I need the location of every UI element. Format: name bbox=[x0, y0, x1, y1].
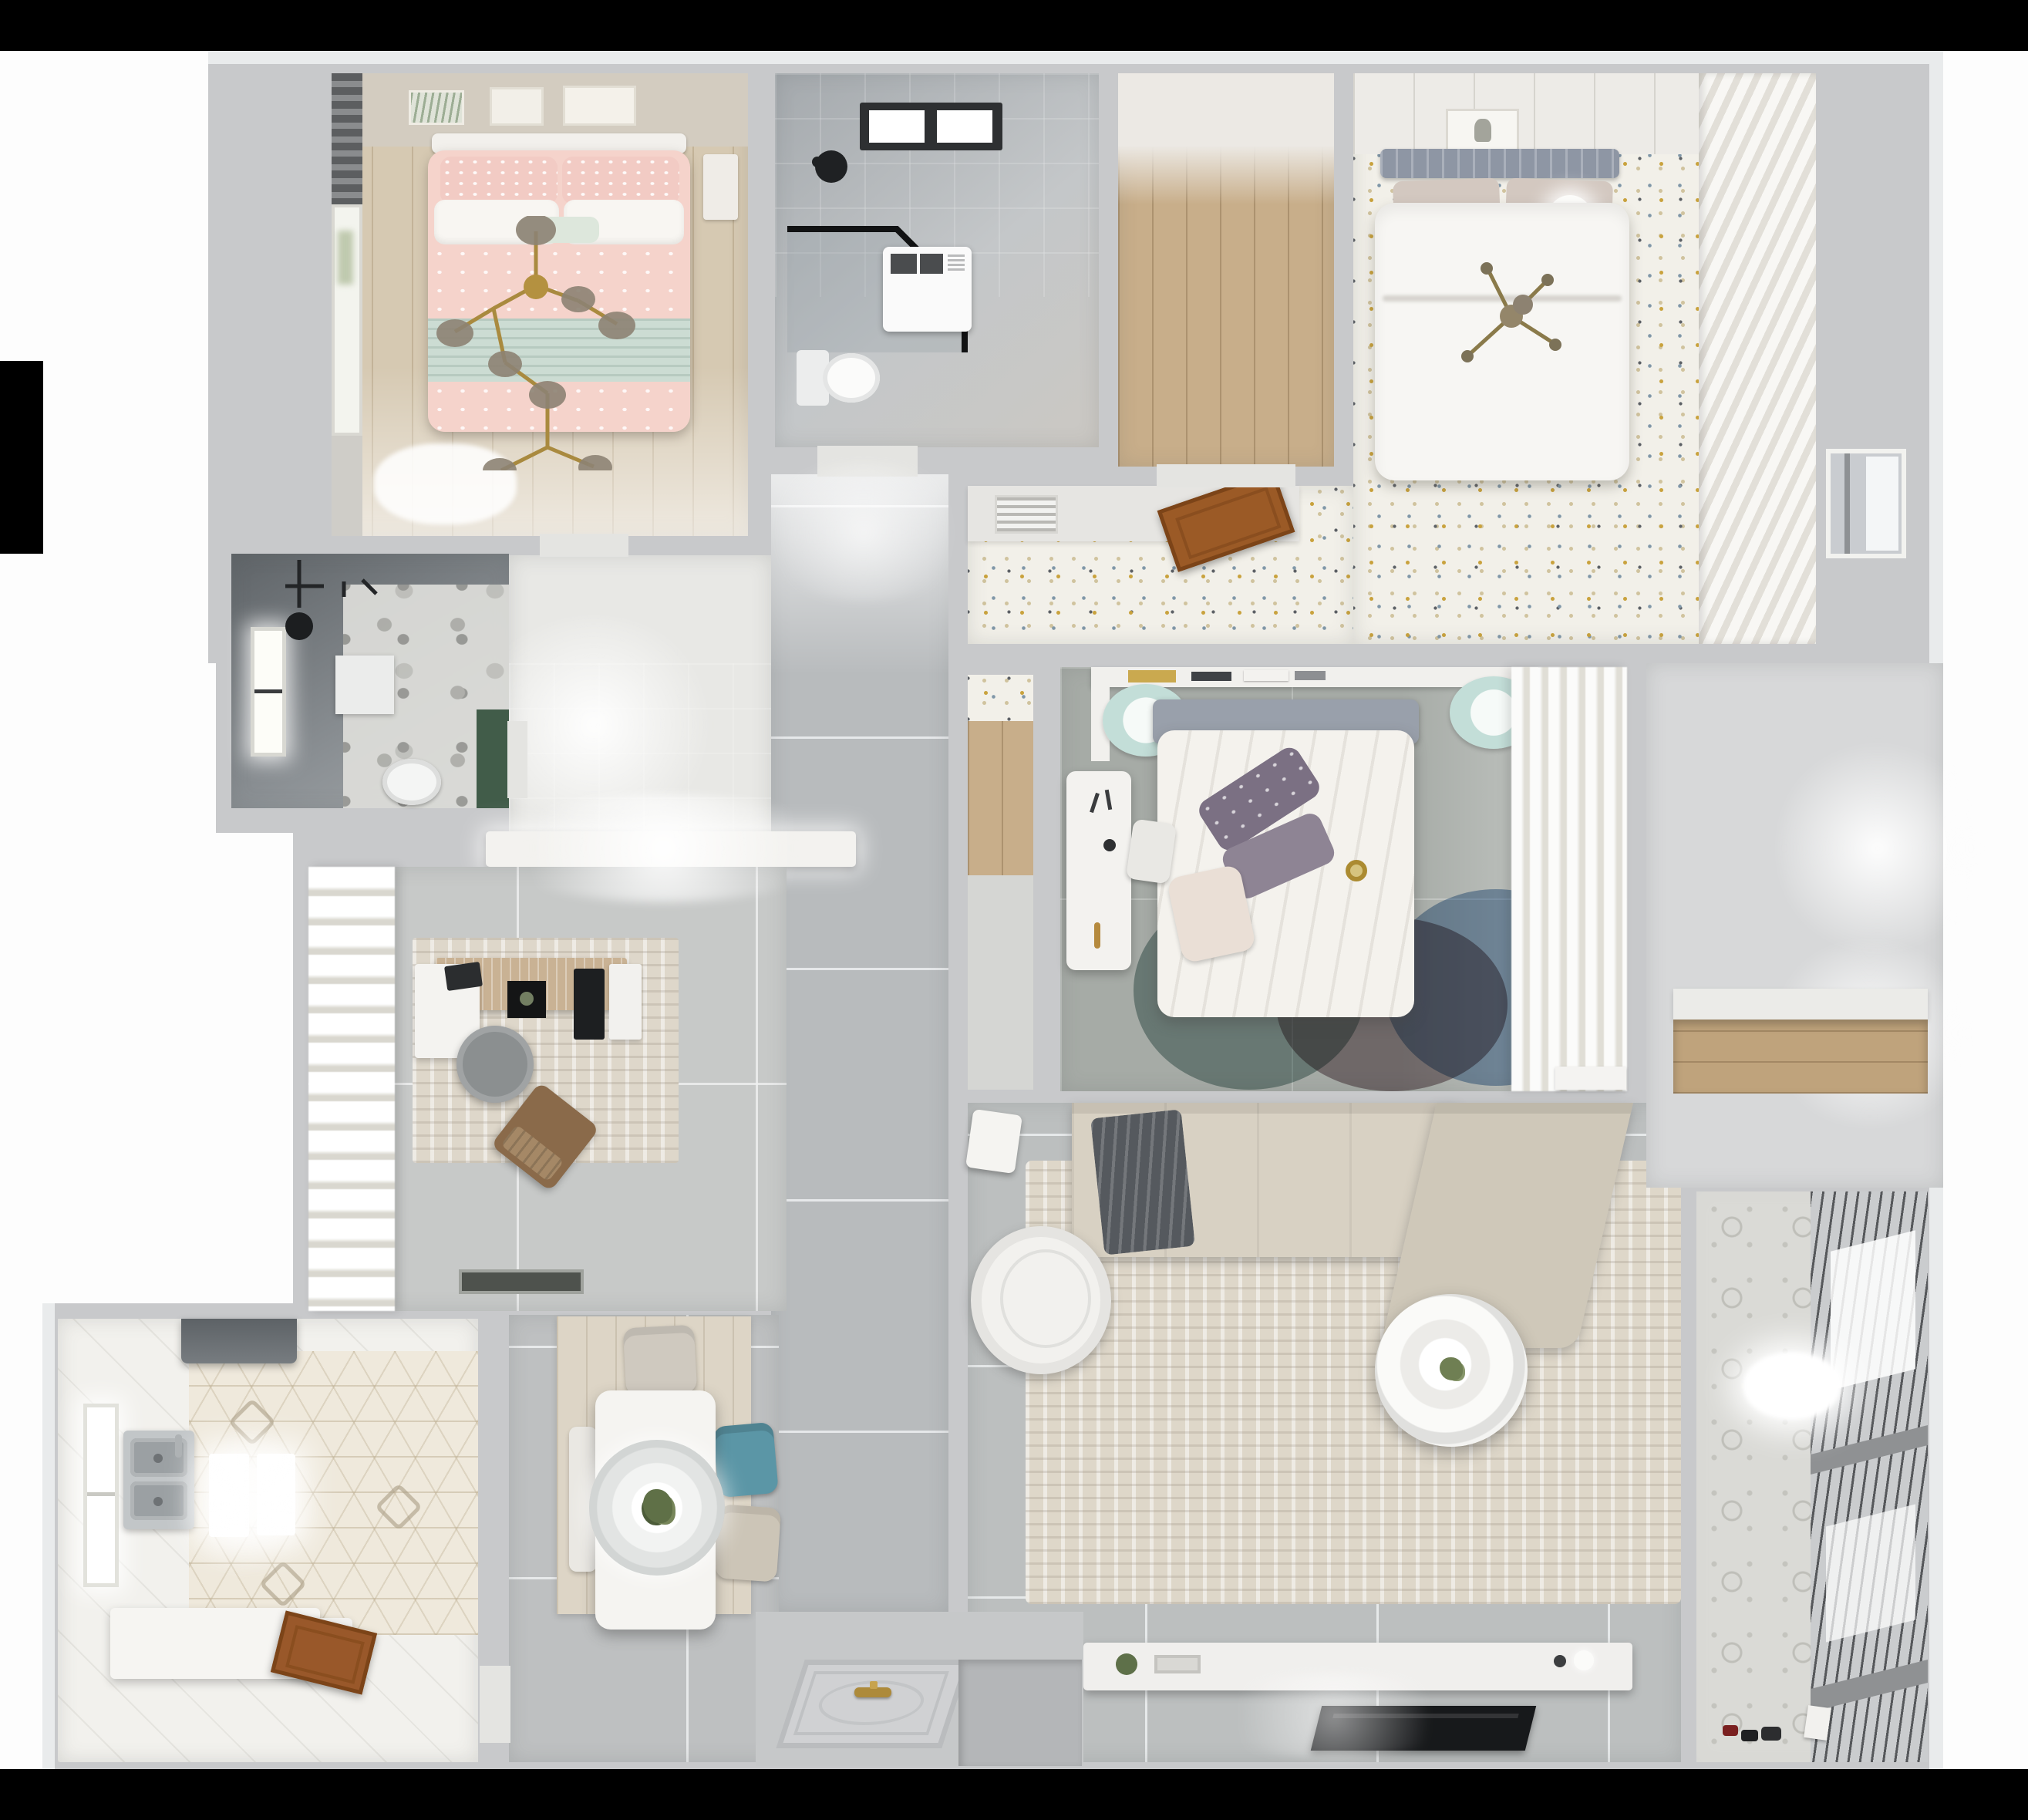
toy-dark-1 bbox=[1741, 1730, 1758, 1741]
wall-art-3 bbox=[563, 86, 636, 126]
blinds-rail-2 bbox=[1811, 1660, 1928, 1712]
door-gap-kitchen bbox=[480, 1666, 510, 1743]
washer-panel-2 bbox=[920, 254, 943, 274]
toy-red bbox=[1723, 1725, 1738, 1736]
drain-2 bbox=[153, 1497, 163, 1506]
midbed-desk bbox=[1066, 771, 1131, 970]
desk-handle-gold bbox=[1094, 922, 1100, 949]
wall-art-2 bbox=[490, 87, 544, 126]
shower-tray bbox=[335, 656, 394, 714]
book-1 bbox=[1128, 670, 1176, 682]
utility-wood-niche bbox=[1673, 1020, 1928, 1094]
kitchen-door-panel bbox=[285, 1625, 365, 1684]
armchair-seam bbox=[1000, 1249, 1091, 1348]
desk-plant-dot bbox=[520, 992, 534, 1006]
room-bedroom-middle bbox=[1060, 667, 1627, 1091]
lounge-cushion bbox=[500, 1124, 564, 1182]
sputnik-lamp-icon bbox=[1446, 251, 1577, 382]
desk-pen-2 bbox=[1105, 790, 1112, 810]
midbed-niche-speckle bbox=[968, 675, 1033, 721]
console-plant bbox=[1116, 1653, 1137, 1675]
nightstand bbox=[703, 154, 738, 220]
hex-motif-2 bbox=[375, 1483, 423, 1531]
right-wall-window bbox=[1826, 449, 1906, 558]
ac-vent-grille-icon bbox=[995, 495, 1058, 534]
pillow-pink-1 bbox=[440, 157, 558, 204]
green-vanity bbox=[477, 709, 509, 808]
utility-shelf-white bbox=[1673, 989, 1928, 1020]
book-4 bbox=[1295, 671, 1326, 680]
floorplan-render bbox=[0, 0, 2028, 1820]
sink-unit bbox=[123, 1431, 194, 1529]
desk-dot bbox=[1103, 839, 1116, 851]
wall-art-plant bbox=[1446, 109, 1519, 151]
room-hallway bbox=[771, 474, 948, 1612]
artifact-band-bottom bbox=[0, 1769, 2028, 1820]
room-closet bbox=[1118, 73, 1334, 467]
desk-pen-1 bbox=[1090, 793, 1100, 813]
drain-1 bbox=[153, 1454, 163, 1463]
toilet-small bbox=[382, 759, 441, 805]
kitchen-faucet-icon bbox=[175, 1434, 182, 1458]
tv-reflection bbox=[1332, 1714, 1518, 1718]
dining-chair-top bbox=[623, 1325, 697, 1397]
kitchen-window bbox=[83, 1404, 119, 1587]
coffee-table-donut bbox=[1375, 1294, 1528, 1447]
console-ball bbox=[1574, 1650, 1594, 1670]
room-bathroom-small bbox=[231, 554, 509, 808]
skylight-pane-2 bbox=[937, 110, 992, 143]
art-plant-sketch bbox=[1474, 119, 1491, 142]
tv-panel bbox=[1311, 1706, 1536, 1751]
room-bedroom-pink bbox=[332, 73, 748, 536]
tv-console bbox=[1083, 1643, 1632, 1690]
blinds-rail-1 bbox=[1811, 1425, 1928, 1475]
console-frames bbox=[1154, 1655, 1201, 1673]
study-doormat bbox=[459, 1269, 584, 1294]
room-bedroom-right-entry bbox=[968, 486, 1353, 644]
toilet-main bbox=[797, 347, 883, 409]
right-window-bar bbox=[1844, 453, 1850, 554]
console-dark-dot bbox=[1554, 1655, 1566, 1667]
door-handle-gold-icon bbox=[854, 1687, 891, 1697]
midbed-doormat bbox=[1555, 1067, 1626, 1090]
washer-label bbox=[948, 254, 965, 273]
shower-head-icon bbox=[815, 150, 847, 183]
kitchen-window-mullion bbox=[87, 1492, 115, 1496]
toy-dark-2 bbox=[1761, 1727, 1781, 1741]
curtain-edge bbox=[332, 436, 362, 536]
midbed-niche-floor bbox=[968, 875, 1033, 1090]
armchair-round bbox=[971, 1226, 1111, 1374]
wall-top-highlight-top bbox=[208, 50, 1943, 64]
pillow-pink-2 bbox=[562, 157, 679, 204]
wall-art-1 bbox=[409, 90, 464, 125]
room-bathroom-main bbox=[775, 73, 1099, 447]
sofa-throw-dark bbox=[1090, 1109, 1195, 1255]
utility-glow-1 bbox=[1777, 733, 1978, 964]
room-dining bbox=[509, 1315, 779, 1762]
hex-motif-3 bbox=[259, 1560, 307, 1608]
door-gap-bathroom-small bbox=[507, 721, 527, 798]
skylight bbox=[860, 103, 1002, 150]
room-corridor bbox=[509, 555, 771, 864]
hex-motif-1 bbox=[228, 1398, 276, 1446]
wall-top-highlight-kitchen bbox=[42, 1303, 55, 1769]
window-green-hint bbox=[338, 231, 353, 285]
room-entry bbox=[756, 1612, 1083, 1766]
balcony-window-blinds bbox=[1811, 1191, 1928, 1762]
closet-ceiling bbox=[1118, 73, 1334, 204]
wardrobe-louvered bbox=[1699, 73, 1816, 644]
gold-knob-lamp bbox=[1346, 860, 1367, 881]
blinds-bright-top bbox=[1831, 1230, 1915, 1390]
dining-chair-teal bbox=[712, 1422, 779, 1498]
skylight-pane-1 bbox=[869, 110, 925, 143]
artifact-strip-left bbox=[0, 361, 43, 554]
range-hood bbox=[181, 1319, 297, 1363]
washer-panel-1 bbox=[891, 254, 917, 274]
book-2 bbox=[1191, 672, 1231, 681]
window-left bbox=[332, 204, 362, 436]
washing-machine bbox=[883, 247, 972, 332]
side-table bbox=[965, 1109, 1022, 1174]
white-bag bbox=[1804, 1705, 1831, 1741]
counter-glow-1 bbox=[209, 1454, 249, 1537]
entry-step-platform bbox=[958, 1660, 1082, 1766]
headboard-gray bbox=[1380, 149, 1619, 178]
midbed-curtains bbox=[1511, 667, 1627, 1091]
dining-chair-beige bbox=[715, 1504, 782, 1582]
door-gap-bathroom-main bbox=[817, 446, 918, 477]
midbed-chair bbox=[1126, 818, 1177, 884]
door-gap-bedroom-pink bbox=[540, 534, 628, 557]
desk-shelf-white bbox=[609, 964, 642, 1040]
shower-head-small-icon bbox=[285, 612, 313, 640]
donut-plant bbox=[1440, 1357, 1463, 1380]
monitor-panel bbox=[574, 969, 605, 1040]
laptop-icon bbox=[444, 962, 483, 991]
desk-mat-dark bbox=[507, 981, 546, 1018]
door-gap-closet bbox=[1157, 464, 1295, 487]
blinds-bright-mid bbox=[1826, 1505, 1915, 1643]
room-bedroom-right bbox=[1353, 73, 1816, 644]
room-study bbox=[308, 867, 787, 1311]
door-handle-knob bbox=[870, 1681, 878, 1689]
bath-window bbox=[251, 627, 286, 757]
right-window-bright-pane bbox=[1866, 457, 1898, 551]
corridor-sideboard bbox=[486, 831, 856, 867]
office-chair bbox=[456, 1026, 534, 1103]
pendant-plant-centerpiece bbox=[643, 1489, 672, 1523]
sink-basin-2 bbox=[130, 1481, 187, 1520]
midbed-niche-wood bbox=[968, 721, 1033, 875]
study-curtain-wall bbox=[308, 867, 395, 1311]
midbed-mattress bbox=[1157, 730, 1414, 1017]
counter-glow-2 bbox=[257, 1454, 295, 1535]
room-utility-right bbox=[1646, 663, 1943, 1188]
book-3 bbox=[1244, 670, 1289, 681]
balcony-ceiling-light bbox=[1743, 1352, 1841, 1420]
gold-chandelier-icon bbox=[432, 216, 640, 470]
toilet-bowl bbox=[823, 353, 880, 403]
roman-blind bbox=[332, 73, 362, 204]
room-kitchen bbox=[58, 1319, 478, 1762]
window-mullion bbox=[254, 689, 282, 693]
hallway-light-wash bbox=[771, 474, 948, 675]
entry-doormat bbox=[776, 1660, 970, 1748]
room-balcony bbox=[1696, 1191, 1928, 1762]
pipes-icon bbox=[278, 560, 401, 614]
balcony-pattern-tile bbox=[1696, 1191, 1811, 1762]
artifact-band-top bbox=[0, 0, 2028, 51]
pendant-ring-lamp bbox=[589, 1440, 725, 1576]
